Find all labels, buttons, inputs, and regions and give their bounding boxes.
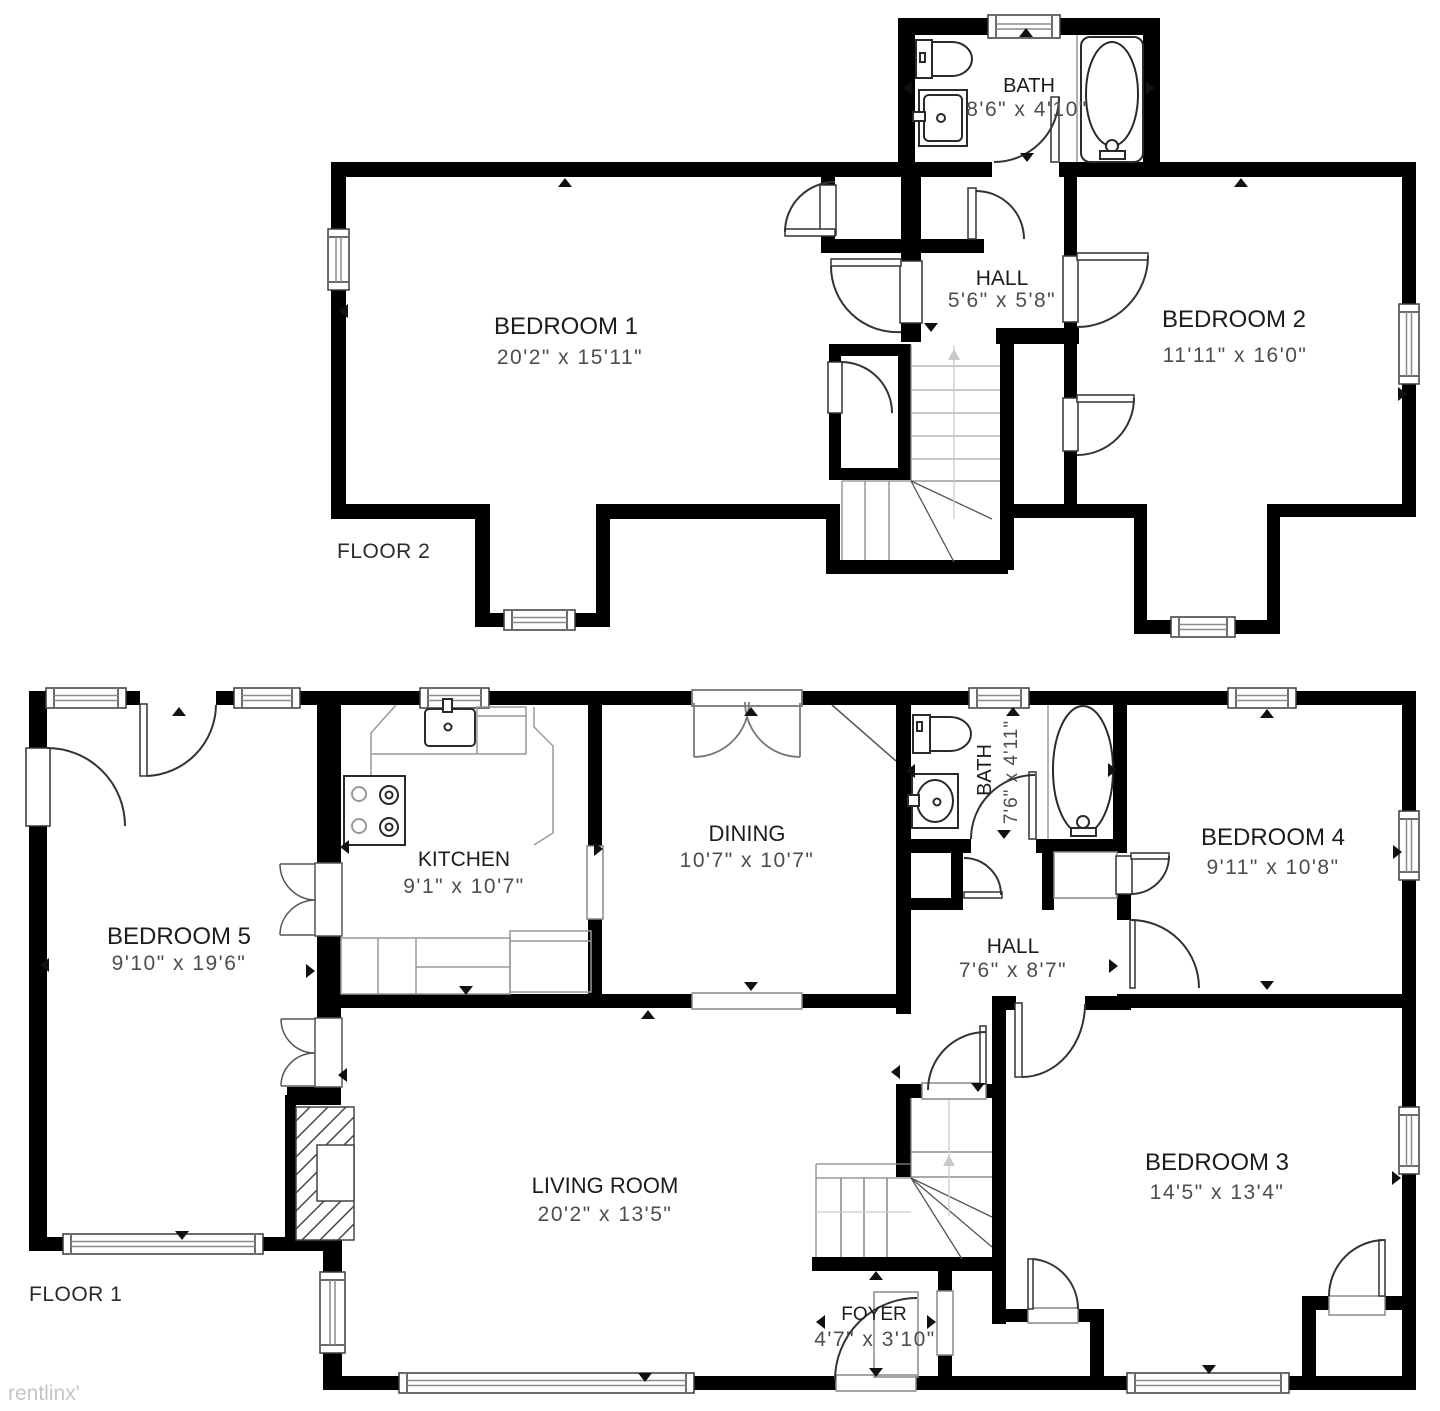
svg-text:20'2" x 15'11": 20'2" x 15'11" — [497, 346, 643, 369]
svg-text:7'6" x 8'7": 7'6" x 8'7" — [959, 959, 1067, 982]
svg-text:4'7" x 3'10": 4'7" x 3'10" — [814, 1328, 936, 1351]
svg-text:rentlinxʹ: rentlinxʹ — [8, 1382, 80, 1405]
svg-text:20'2" x 13'5": 20'2" x 13'5" — [538, 1203, 673, 1226]
svg-text:BEDROOM 3: BEDROOM 3 — [1145, 1149, 1289, 1176]
svg-text:BEDROOM 2: BEDROOM 2 — [1162, 306, 1306, 333]
svg-text:9'1" x 10'7": 9'1" x 10'7" — [403, 875, 525, 898]
svg-text:DINING: DINING — [709, 821, 786, 846]
svg-text:10'7" x 10'7": 10'7" x 10'7" — [680, 849, 815, 872]
svg-text:KITCHEN: KITCHEN — [418, 848, 510, 871]
svg-text:5'6" x 5'8": 5'6" x 5'8" — [948, 289, 1056, 312]
svg-text:FOYER: FOYER — [841, 1304, 906, 1325]
svg-text:14'5" x 13'4": 14'5" x 13'4" — [1150, 1181, 1285, 1204]
svg-text:9'10" x 19'6": 9'10" x 19'6" — [112, 952, 247, 975]
svg-text:FLOOR 2: FLOOR 2 — [337, 540, 430, 563]
svg-text:LIVING ROOM: LIVING ROOM — [532, 1173, 679, 1198]
svg-text:BEDROOM 5: BEDROOM 5 — [107, 923, 251, 950]
svg-text:BATH: BATH — [1003, 75, 1055, 97]
svg-text:7'6" x 4'11": 7'6" x 4'11" — [1001, 720, 1022, 824]
svg-text:BATH: BATH — [974, 744, 996, 796]
svg-text:8'6" x 4'10": 8'6" x 4'10" — [966, 98, 1088, 121]
svg-text:11'11" x 16'0": 11'11" x 16'0" — [1163, 344, 1308, 367]
svg-text:FLOOR 1: FLOOR 1 — [29, 1283, 122, 1306]
svg-text:BEDROOM 1: BEDROOM 1 — [494, 313, 638, 340]
svg-text:HALL: HALL — [976, 267, 1029, 290]
svg-text:BEDROOM 4: BEDROOM 4 — [1201, 824, 1345, 851]
svg-text:9'11" x 10'8": 9'11" x 10'8" — [1206, 856, 1339, 879]
svg-text:HALL: HALL — [987, 935, 1040, 958]
